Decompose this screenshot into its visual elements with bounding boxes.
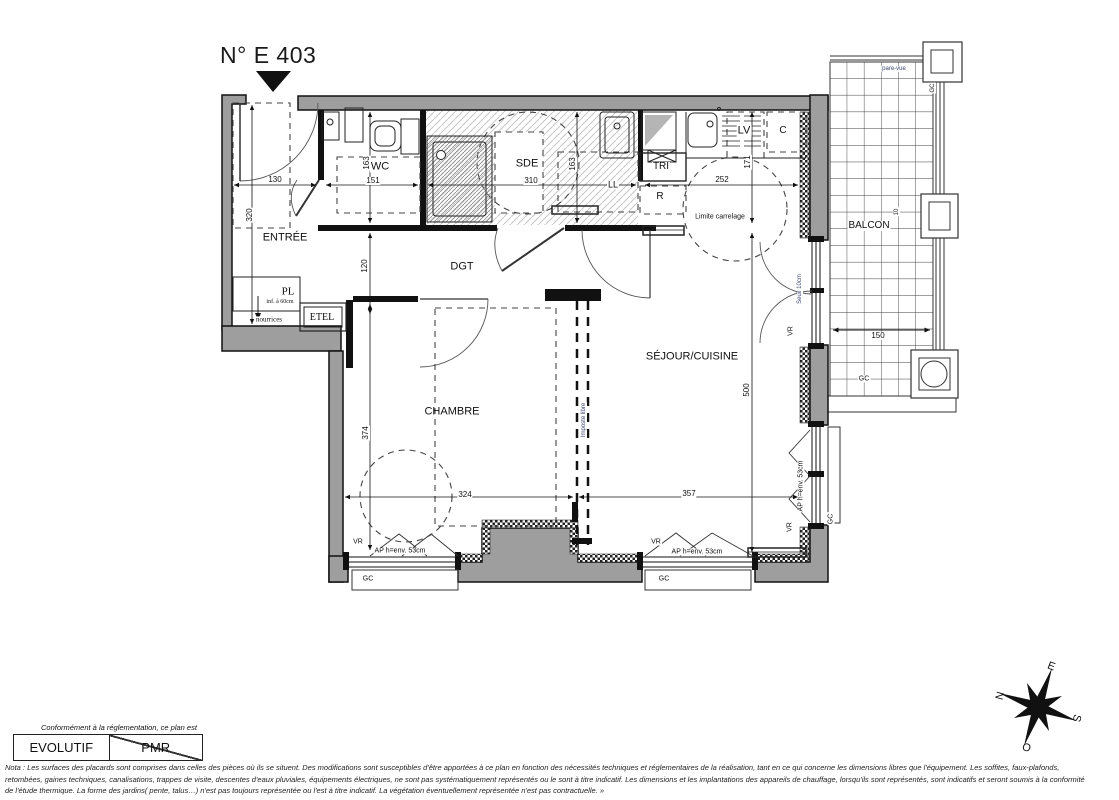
nota-line-2: retombées, gaines techniques, canalisati… — [5, 774, 1117, 786]
legend: Conformément à la réglementation, ce pla… — [13, 723, 203, 761]
future-partition-dashed — [577, 301, 588, 545]
balcony — [828, 42, 962, 412]
nota-line-1: Nota : Les surfaces des placards sont co… — [5, 762, 1117, 774]
legend-caption: Conformément à la réglementation, ce pla… — [41, 723, 203, 732]
floor-plan-drawing — [0, 0, 1119, 800]
duct — [345, 108, 363, 142]
nota-line-3: de l'étude thermique. La forme des jardi… — [5, 785, 1117, 797]
drainer — [722, 116, 761, 146]
wc-hand-basin — [322, 112, 339, 140]
floor-plan-page: N° E 403 — [0, 0, 1119, 800]
legend-table: EVOLUTIF PMR — [13, 734, 203, 761]
window-opening-symbols — [370, 430, 810, 556]
compass-rose — [999, 668, 1077, 746]
kitchen-sink — [688, 113, 717, 147]
legend-evolutif: EVOLUTIF — [14, 735, 110, 760]
shower-tray — [427, 136, 492, 222]
legend-pmr-struck: PMR — [110, 735, 203, 760]
tri-cabinet — [640, 153, 686, 181]
entrance-marker — [256, 71, 291, 92]
nota-text: Nota : Les surfaces des placards sont co… — [5, 762, 1117, 797]
pl-closet — [233, 277, 300, 311]
